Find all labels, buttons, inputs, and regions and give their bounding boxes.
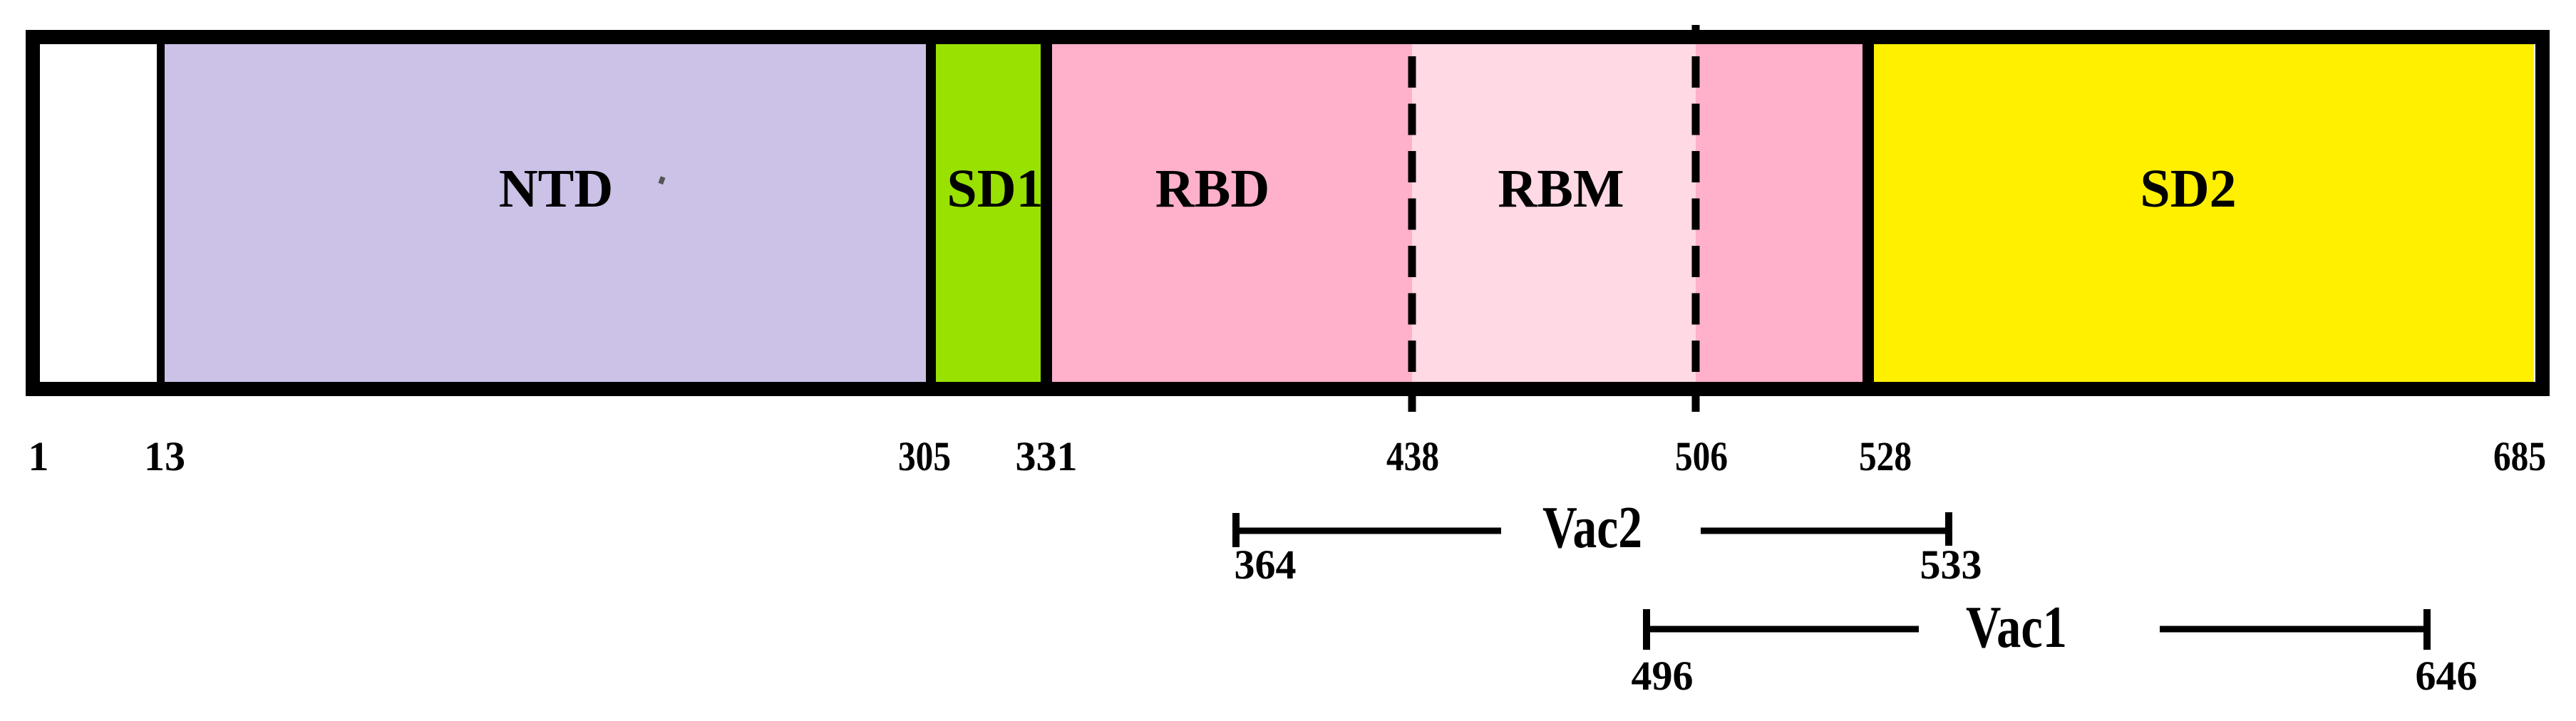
- svg-text:646: 646: [2416, 653, 2478, 699]
- svg-text:Vac1: Vac1: [1966, 594, 2067, 660]
- svg-text:528: 528: [1859, 433, 1912, 479]
- svg-text:Vac2: Vac2: [1542, 494, 1642, 561]
- svg-text:364: 364: [1235, 541, 1297, 588]
- svg-text:533: 533: [1920, 541, 1982, 588]
- svg-text:331: 331: [1016, 433, 1078, 479]
- svg-text:RBD: RBD: [1155, 159, 1269, 219]
- svg-text:13: 13: [144, 433, 185, 479]
- svg-text:1: 1: [29, 433, 49, 479]
- svg-text:506: 506: [1675, 433, 1728, 479]
- svg-text:NTD: NTD: [499, 159, 613, 219]
- svg-text:438: 438: [1386, 433, 1439, 479]
- svg-text:RBM: RBM: [1498, 159, 1624, 219]
- svg-text:SD2: SD2: [2140, 159, 2236, 219]
- svg-text:496: 496: [1632, 653, 1694, 699]
- svg-text:685: 685: [2493, 433, 2546, 479]
- svg-text:305: 305: [898, 433, 951, 479]
- svg-text:SD1: SD1: [947, 159, 1043, 219]
